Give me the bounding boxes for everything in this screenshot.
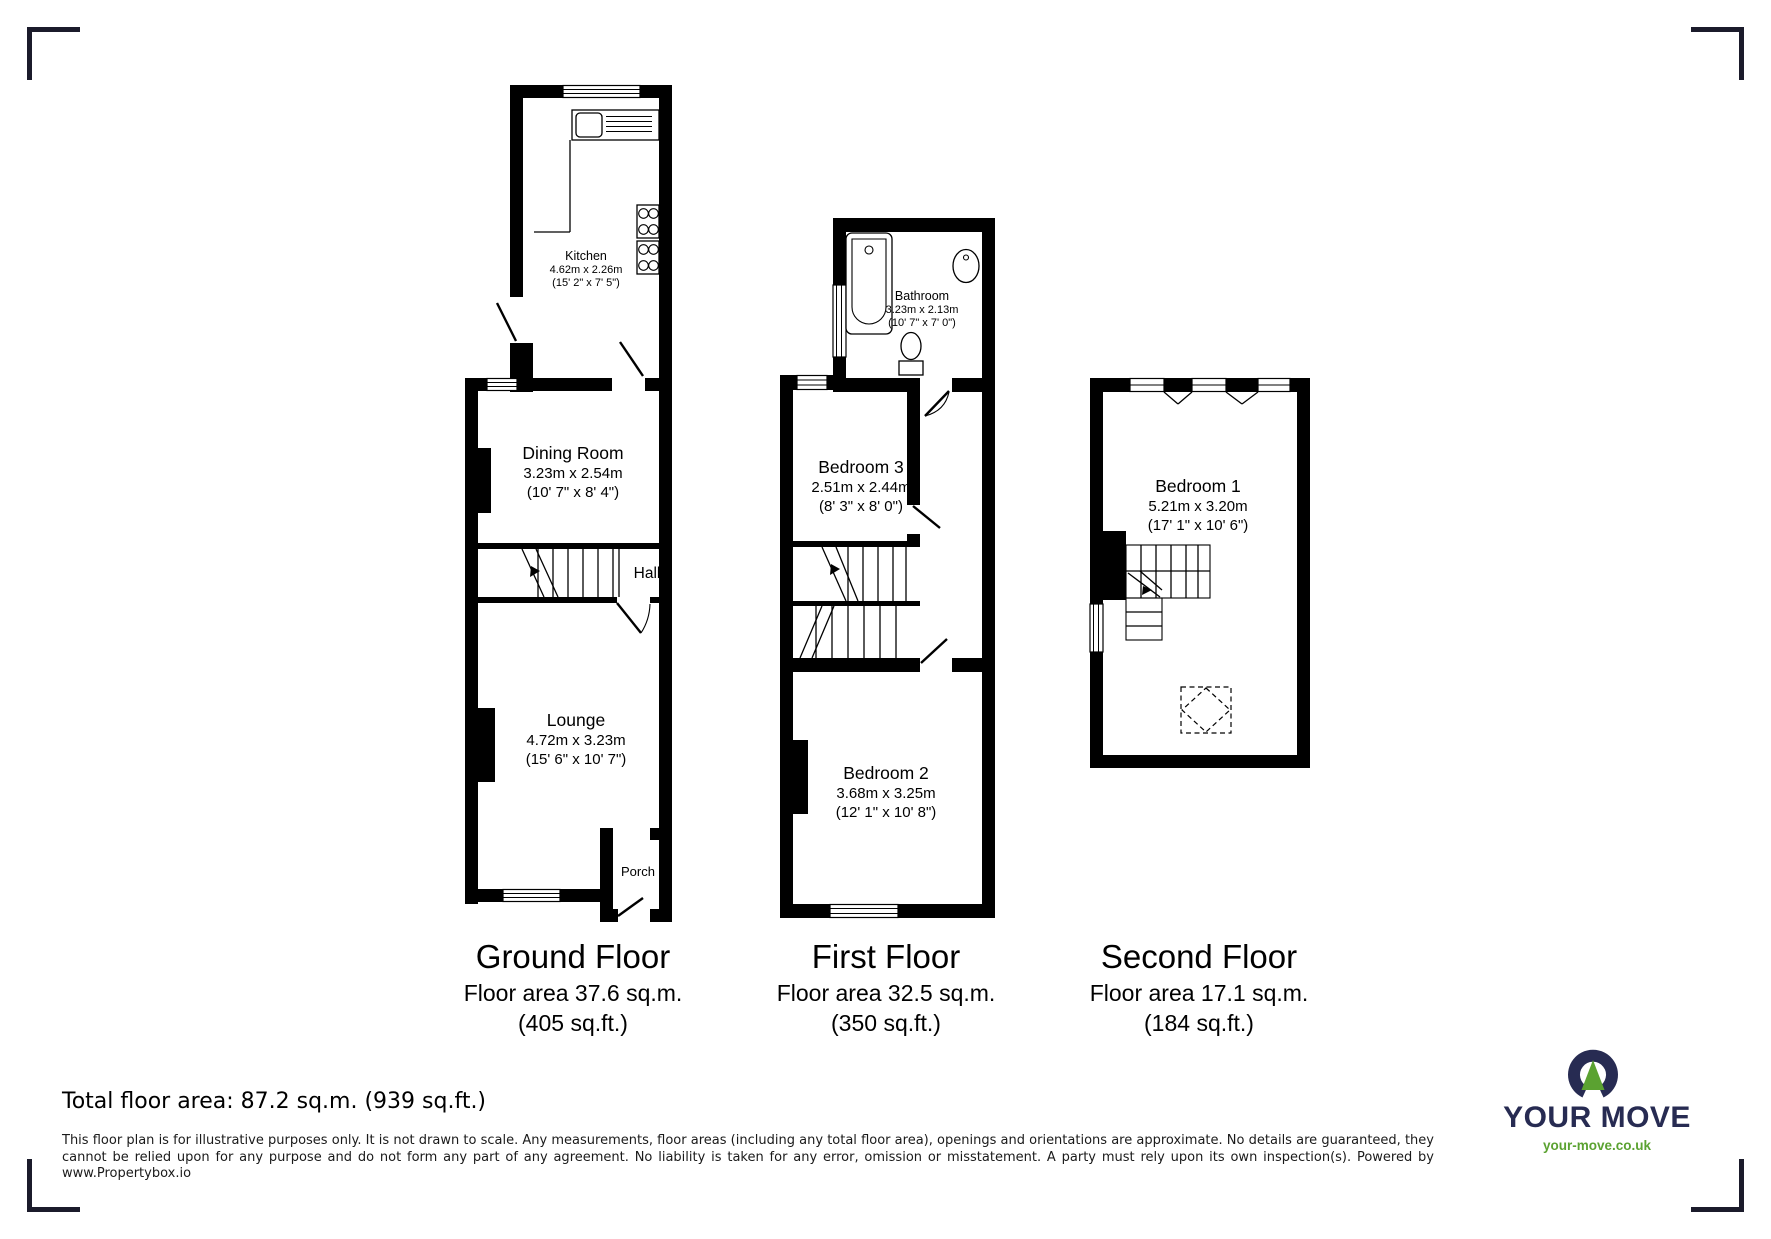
room-dims-metric: 3.23m x 2.13m	[886, 304, 959, 317]
stairs-icon	[522, 549, 619, 597]
toilet-icon	[899, 333, 923, 376]
floor-area-imperial: (405 sq.ft.)	[464, 1008, 683, 1038]
room-dims-imperial: (10' 7" x 8' 4")	[522, 483, 623, 502]
floor-area-imperial: (350 sq.ft.)	[777, 1008, 996, 1038]
room-label-hall: Hall	[634, 565, 661, 583]
caption-first-floor: First Floor Floor area 32.5 sq.m. (350 s…	[777, 936, 996, 1038]
room-label-bathroom: Bathroom 3.23m x 2.13m (10' 7" x 7' 0")	[886, 289, 959, 330]
room-dims-metric: 3.23m x 2.54m	[522, 464, 623, 483]
room-dims-metric: 2.51m x 2.44m	[811, 478, 910, 497]
room-name: Kitchen	[550, 249, 623, 264]
room-label-bedroom-3: Bedroom 3 2.51m x 2.44m (8' 3" x 8' 0")	[811, 457, 910, 516]
room-name: Bedroom 1	[1148, 476, 1249, 497]
room-label-lounge: Lounge 4.72m x 3.23m (15' 6" x 10' 7")	[526, 710, 627, 769]
room-name: Bathroom	[886, 289, 959, 304]
room-name: Lounge	[526, 710, 627, 731]
room-name: Bedroom 3	[811, 457, 910, 478]
kitchen-sink-icon	[572, 110, 659, 140]
total-floor-area: Total floor area: 87.2 sq.m. (939 sq.ft.…	[62, 1089, 486, 1114]
floor-area-imperial: (184 sq.ft.)	[1090, 1008, 1309, 1038]
floor-title: First Floor	[777, 936, 996, 978]
room-dims-metric: 3.68m x 3.25m	[836, 784, 937, 803]
room-dims-metric: 4.72m x 3.23m	[526, 731, 627, 750]
caption-second-floor: Second Floor Floor area 17.1 sq.m. (184 …	[1090, 936, 1309, 1038]
floorplan-drawing	[0, 0, 1771, 1239]
room-dims-imperial: (17' 1" x 10' 6")	[1148, 516, 1249, 535]
room-dims-imperial: (12' 1" x 10' 8")	[836, 803, 937, 822]
room-dims-imperial: (15' 6" x 10' 7")	[526, 750, 627, 769]
roof-reveal-lines	[1164, 392, 1258, 404]
caption-ground-floor: Ground Floor Floor area 37.6 sq.m. (405 …	[464, 936, 683, 1038]
room-dims-imperial: (10' 7" x 7' 0")	[886, 317, 959, 330]
disclaimer-text: This floor plan is for illustrative purp…	[62, 1133, 1434, 1183]
second-floor-plan	[1090, 378, 1310, 768]
floor-title: Second Floor	[1090, 936, 1309, 978]
room-dims-imperial: (15' 2" x 7' 5")	[550, 277, 623, 290]
room-name: Dining Room	[522, 443, 623, 464]
room-dims-imperial: (8' 3" x 8' 0")	[811, 497, 910, 516]
rooflight-icon	[1181, 687, 1231, 733]
logo-mark-icon	[1560, 1048, 1626, 1108]
ground-floor-plan	[465, 85, 672, 922]
room-label-bedroom-2: Bedroom 2 3.68m x 3.25m (12' 1" x 10' 8"…	[836, 763, 937, 822]
stairs-icon	[1126, 545, 1210, 640]
room-label-kitchen: Kitchen 4.62m x 2.26m (15' 2" x 7' 5")	[550, 249, 623, 290]
floor-title: Ground Floor	[464, 936, 683, 978]
room-label-porch: Porch	[621, 864, 655, 879]
room-label-bedroom-1: Bedroom 1 5.21m x 3.20m (17' 1" x 10' 6"…	[1148, 476, 1249, 535]
logo-website-text: your-move.co.uk	[1543, 1138, 1651, 1153]
room-dims-metric: 4.62m x 2.26m	[550, 264, 623, 277]
basin-icon	[953, 250, 979, 283]
floor-area-metric: Floor area 17.1 sq.m.	[1090, 978, 1309, 1008]
room-name: Bedroom 2	[836, 763, 937, 784]
room-dims-metric: 5.21m x 3.20m	[1148, 497, 1249, 516]
room-label-dining-room: Dining Room 3.23m x 2.54m (10' 7" x 8' 4…	[522, 443, 623, 502]
counter-outline	[534, 140, 570, 232]
door-symbol	[497, 303, 650, 916]
hob-icon	[637, 205, 659, 274]
floor-area-metric: Floor area 32.5 sq.m.	[777, 978, 996, 1008]
floor-area-metric: Floor area 37.6 sq.m.	[464, 978, 683, 1008]
logo-brand-text: YOUR MOVE	[1503, 1101, 1691, 1135]
